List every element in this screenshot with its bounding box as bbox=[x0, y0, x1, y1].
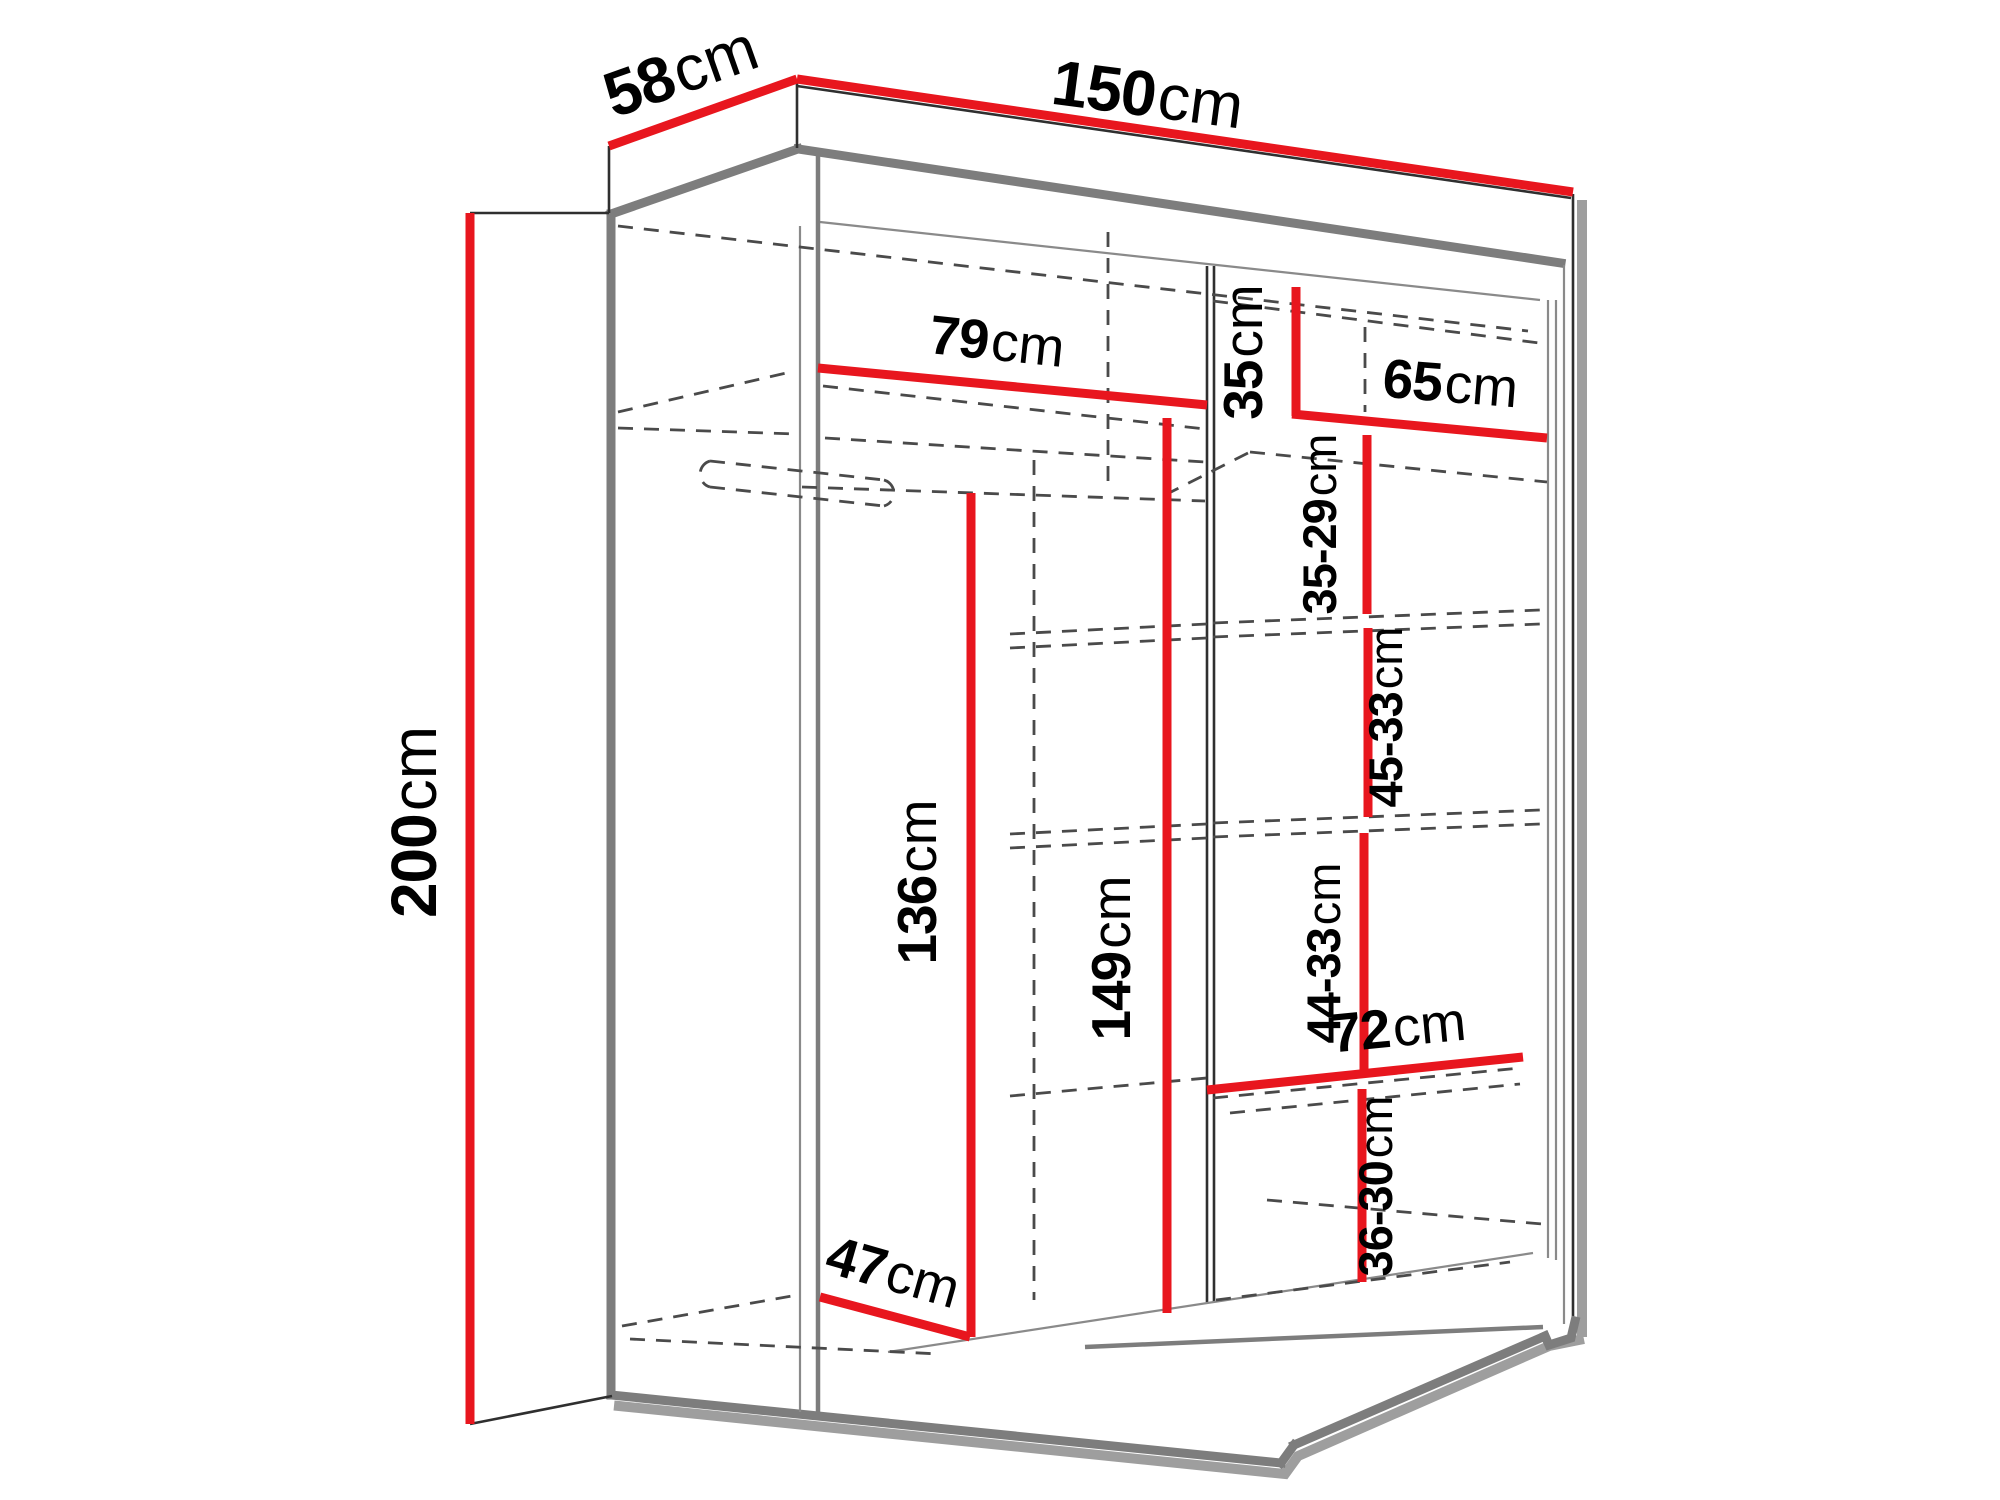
under-top-edge bbox=[820, 222, 1540, 300]
left-shelf-back-dash bbox=[825, 438, 1205, 462]
shelf2-back-dash-b bbox=[1010, 838, 1207, 848]
plinth-right-corner bbox=[1545, 1321, 1575, 1345]
hanger-rail-right-cap bbox=[884, 480, 894, 506]
shelf1-back-dash bbox=[1010, 624, 1207, 634]
label-shelf-79: 79cm bbox=[926, 303, 1067, 379]
label-gap-45-33: 45-33cm bbox=[1359, 627, 1412, 808]
shelf3-back-dash bbox=[1010, 1078, 1207, 1096]
bottom-left-edge bbox=[611, 1395, 1281, 1463]
shelf2-front-dash-b bbox=[1213, 824, 1540, 837]
left-depth-dash-a bbox=[618, 371, 795, 412]
crown-left-edge bbox=[611, 149, 798, 214]
label-shelf-65: 65cm bbox=[1381, 347, 1521, 419]
dimension-labels: 200cm 58cm 150cm 79cm 35cm 65cm 35-29cm … bbox=[378, 11, 1520, 1320]
hanger-rail bbox=[700, 461, 894, 506]
plinth-bottom-edge bbox=[1294, 1336, 1545, 1445]
label-height-149: 149cm bbox=[1080, 875, 1142, 1040]
label-shelf-72: 72cm bbox=[1328, 990, 1469, 1065]
hanger-rail-left-cap bbox=[700, 461, 710, 487]
floor-left-dash-b bbox=[630, 1339, 940, 1354]
left-depth-dash-b bbox=[618, 428, 797, 434]
hanger-rail-top bbox=[710, 461, 884, 480]
left-shelf-under-dash bbox=[823, 386, 1205, 429]
shelf2-front-dash-a bbox=[1213, 810, 1540, 823]
shelf2-back-dash bbox=[1010, 824, 1207, 834]
label-gap-36-30: 36-30cm bbox=[1349, 1096, 1402, 1277]
body-outline bbox=[609, 79, 1575, 1463]
base-front-edge bbox=[1085, 1327, 1543, 1347]
shelf1-front-dash-a bbox=[1213, 610, 1540, 623]
rail-level-dash bbox=[802, 487, 1205, 501]
wardrobe-dimension-diagram: 200cm 58cm 150cm 79cm 35cm 65cm 35-29cm … bbox=[0, 0, 2000, 1500]
floor-right-dash-b bbox=[1267, 1200, 1542, 1224]
crown-front-edge bbox=[798, 149, 1561, 263]
label-height-200: 200cm bbox=[378, 726, 450, 918]
dim-height-bottom-connector bbox=[470, 1396, 612, 1424]
label-35: 35cm bbox=[1212, 284, 1274, 420]
label-gap-35-29: 35-29cm bbox=[1293, 434, 1346, 615]
floor-front-edge bbox=[888, 1253, 1533, 1352]
label-depth-58: 58cm bbox=[594, 11, 767, 131]
diagram-canvas: 200cm 58cm 150cm 79cm 35cm 65cm 35-29cm … bbox=[0, 0, 2000, 1500]
floor-left-dash-a bbox=[622, 1296, 792, 1326]
label-height-136: 136cm bbox=[886, 799, 948, 964]
shelf1-back-dash-b bbox=[1010, 638, 1207, 648]
